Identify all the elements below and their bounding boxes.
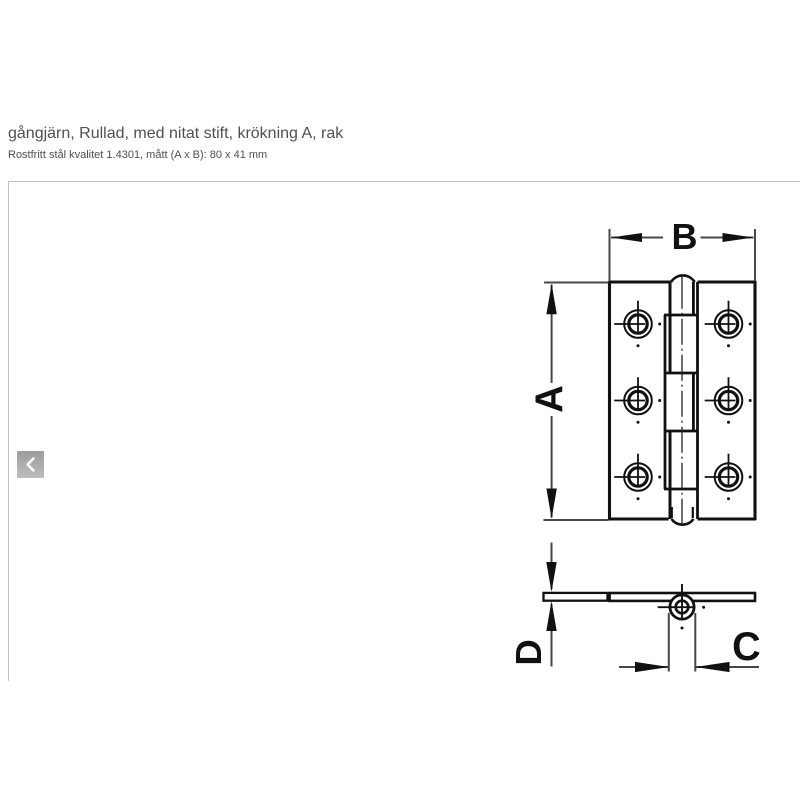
svg-text:C: C xyxy=(732,625,761,669)
svg-text:A: A xyxy=(529,385,572,413)
svg-text:B: B xyxy=(672,216,698,257)
svg-text:D: D xyxy=(508,639,549,665)
